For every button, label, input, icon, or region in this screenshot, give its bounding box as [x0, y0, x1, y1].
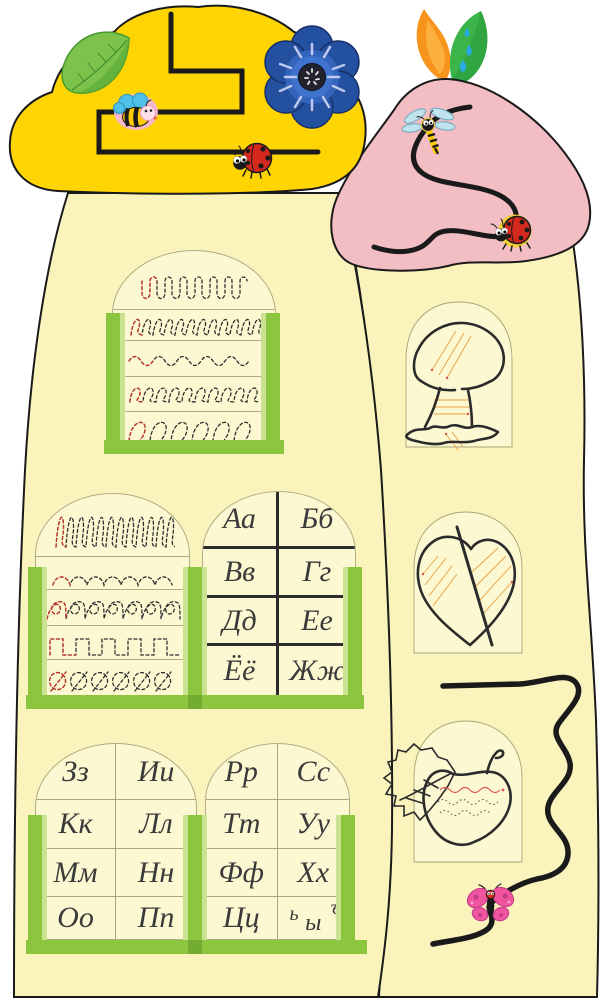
picture-window-leaf	[414, 512, 522, 653]
letter-cell-Ff: Фф	[206, 849, 278, 897]
tracing-row-square-wave	[36, 625, 189, 659]
yery-letter: ы	[305, 910, 321, 937]
alphabet-poster: Аа Бб Вв Гг Дд Ее Ёё Жж Зз Ии Кк Лл Мм Н…	[0, 0, 600, 1000]
letter-cell-Oo: Оо	[36, 897, 116, 939]
frame-bar	[28, 815, 42, 954]
tracing-row-waves	[113, 340, 275, 376]
frame-bar-light	[202, 815, 207, 940]
letter-pair: Вв	[224, 555, 255, 589]
frame-bar	[348, 567, 362, 709]
letter-pair: Уу	[296, 807, 330, 841]
letter-pair: Фф	[219, 856, 264, 890]
letter-pair: Сс	[296, 755, 330, 789]
frame-bar	[106, 313, 120, 454]
letter-cell-Ts: Цц	[206, 897, 278, 939]
letter-pair: Оо	[57, 901, 94, 935]
letter-pair: Хх	[297, 856, 329, 890]
letter-pair: Бб	[301, 502, 334, 536]
frame-corner	[188, 940, 202, 954]
letter-pair: Мм	[53, 856, 97, 890]
tracing-row-slashed-circles	[36, 659, 189, 697]
autumn-leaves	[417, 9, 488, 84]
frame-bar-light	[202, 567, 207, 695]
letter-pair: Цц	[223, 901, 260, 935]
frame-bar	[341, 815, 355, 954]
frame-bar	[188, 815, 202, 954]
tracing-window-middle	[35, 493, 190, 697]
tracing-row-small-loops	[113, 309, 275, 340]
letter-pair: Рр	[225, 755, 258, 789]
letter-pair: Пп	[138, 901, 175, 935]
big-house-cap	[10, 6, 366, 194]
letter-pair: Лл	[139, 807, 172, 841]
small-house-cap	[331, 9, 590, 271]
letter-pair: Гг	[303, 555, 332, 589]
letter-pair: Ее	[301, 604, 333, 638]
letter-cell-Yo: Ёё	[203, 646, 279, 696]
letter-window-r-signs: Рр Сс Тт Уу Фф Хх Цц ь ъ ы	[205, 743, 350, 940]
tracing-row-arches	[36, 556, 189, 589]
frame-corner	[188, 695, 202, 709]
frame-shelf	[104, 440, 284, 454]
letter-cell-Mm: Мм	[36, 849, 116, 897]
letter-pair: Аа	[223, 502, 256, 536]
tracing-window-top	[112, 250, 276, 442]
frame-bar	[266, 313, 280, 454]
letter-window-z-p: Зз Ии Кк Лл Мм Нн Оо Пп	[35, 743, 197, 940]
letter-window-a-zh: Аа Бб Вв Гг Дд Ее Ёё Жж	[202, 491, 356, 697]
letter-pair: Кк	[59, 807, 93, 841]
frame-bar-light	[120, 313, 125, 440]
letter-pair: Нн	[138, 856, 175, 890]
frame-bar-light	[42, 567, 47, 695]
letter-pair: Тт	[222, 807, 260, 841]
tracing-row-round-loops	[113, 376, 275, 411]
tracing-row-figure-eights	[36, 589, 189, 625]
letter-cell-Dd: Дд	[203, 598, 279, 646]
picture-window-mushroom	[406, 302, 512, 450]
letter-cell-Kk: Кк	[36, 800, 116, 849]
letter-pair: Зз	[62, 755, 89, 789]
letter-pair: Ёё	[224, 654, 256, 688]
letter-cell-Tt: Тт	[206, 800, 278, 849]
letter-pair: Ии	[138, 755, 175, 789]
frame-bar	[188, 567, 202, 709]
soft-sign: ь	[290, 903, 299, 926]
tracing-row-big-loops	[113, 411, 275, 442]
letter-pair: Дд	[222, 604, 256, 638]
frame-bar	[28, 567, 42, 709]
letter-cell-Vv: Вв	[203, 549, 279, 598]
letter-pair: Жж	[289, 654, 344, 688]
frame-bar-light	[42, 815, 47, 940]
